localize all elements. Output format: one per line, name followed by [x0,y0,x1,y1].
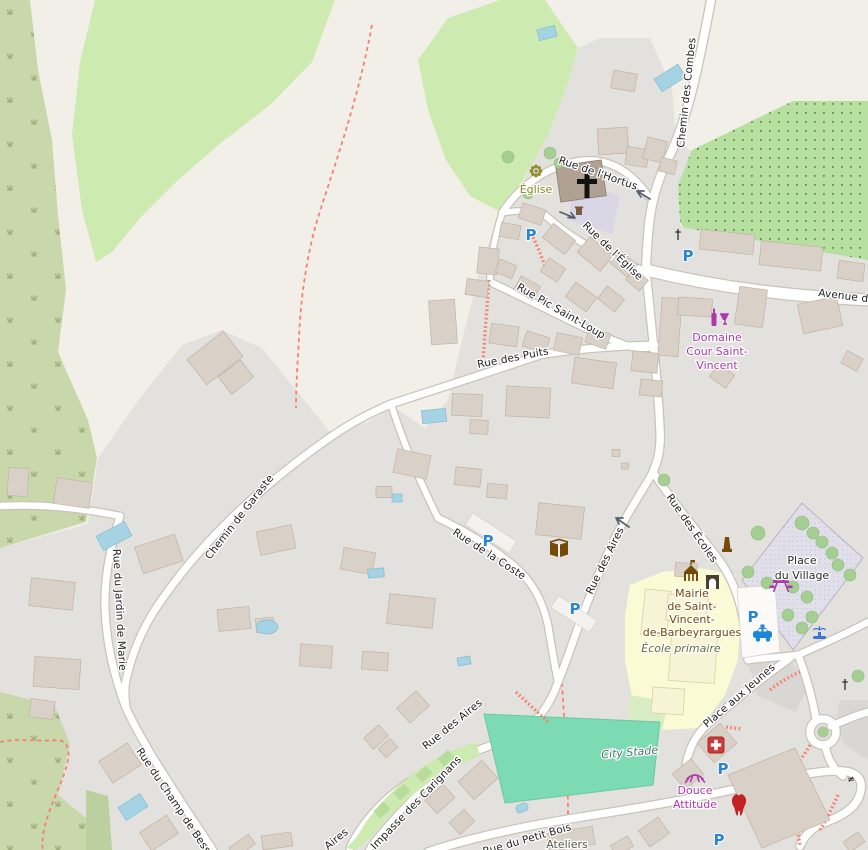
green-strip-southwest [86,790,112,850]
pharmacy-icon [708,737,724,753]
building [597,127,629,155]
map-canvas[interactable]: † † P P P P P P P [0,0,868,850]
mairie-label: Vincent- [669,613,714,626]
building [53,478,92,509]
mairie-label: de-Bar​beyrargues [643,626,742,639]
building [571,357,616,389]
tree [782,609,794,621]
building [612,450,620,457]
building [387,594,436,629]
building [505,386,551,418]
building [361,651,388,671]
building [299,644,332,668]
wayside-cross-icon: † [842,678,849,693]
building [470,420,488,435]
parking-icon: P [570,600,581,618]
ecole-label: École primaire [641,642,721,655]
gate-icon: ≠ [847,775,855,785]
place-du-village-label: du Village [775,569,830,582]
tree [806,611,818,623]
parking-icon: P [683,247,694,265]
tree [742,566,754,578]
ateliers-label: Ateliers [546,838,588,850]
tree [807,527,819,539]
tree [658,474,670,486]
tree [796,622,808,634]
building [465,279,489,298]
building [631,351,659,374]
building [29,578,76,610]
swimming-pool [421,408,446,423]
tree [816,536,828,548]
parking-icon: P [714,831,725,849]
building [639,379,663,397]
building [33,656,81,689]
map-svg: † † P P P P P P P [0,0,868,850]
building [376,487,392,498]
tree [801,591,813,603]
building [611,70,638,92]
douce-attitude-label: Douce [678,784,713,797]
building [677,297,712,317]
waste-basket-icon [575,207,583,216]
parking-lot-mairie [737,585,780,658]
building [7,467,29,496]
tree [544,147,556,159]
tree [852,670,864,682]
domaine-label: Domaine [692,331,742,344]
mairie-label: de Saint- [667,600,716,613]
swimming-pool [368,568,385,578]
douce-attitude-label: Attitude [673,798,717,811]
building [837,260,865,281]
school-building [651,687,685,715]
building [486,483,507,499]
domaine-label: Vincent [696,359,738,372]
wayside-cross-icon: † [675,228,682,243]
building [217,606,251,631]
tree [832,559,844,571]
building [535,503,584,540]
tree [826,547,838,559]
building [454,467,482,488]
building [29,698,55,719]
building [734,286,767,328]
domaine-label: Cour Saint- [686,345,747,358]
tree [819,728,828,737]
parking-icon: P [748,608,759,626]
school-building [668,632,717,683]
eglise-label: Église [520,183,553,196]
building [622,463,629,469]
building [428,299,457,345]
parking-icon: P [526,226,537,244]
parking-icon: P [718,760,729,778]
swimming-pool [392,494,402,502]
building [499,222,521,239]
building [452,393,483,416]
tree [751,526,765,540]
tree [795,516,809,530]
tree [502,151,514,163]
mairie-label: Mairie [675,587,709,600]
place-du-village-label: Place [787,554,816,567]
building [489,323,520,347]
pond [256,620,278,634]
tree [844,569,856,581]
